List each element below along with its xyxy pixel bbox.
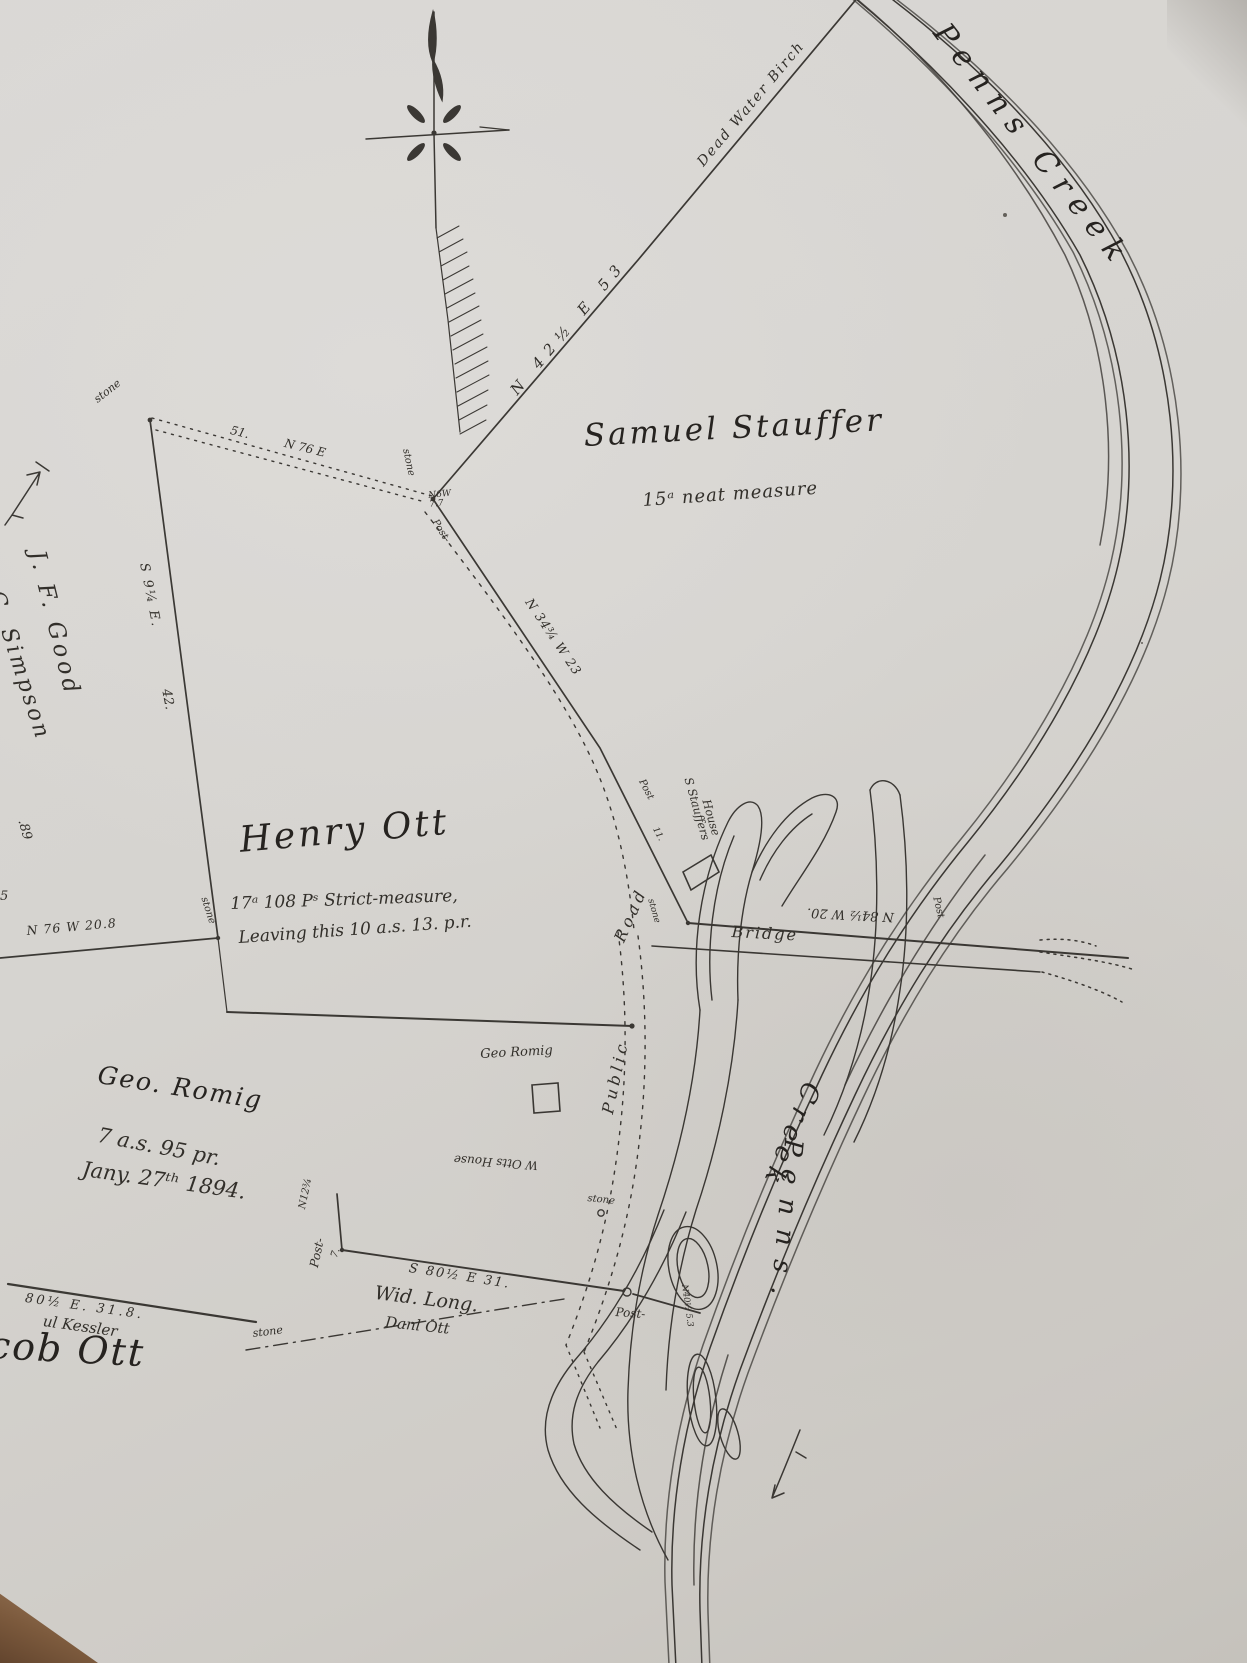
flow-arrow-icon	[772, 1430, 806, 1498]
survey-map-photo: Penns Creek Creek Penns. Dead Water Birc…	[0, 0, 1247, 1663]
label-post-creek: Post-	[615, 1306, 646, 1321]
house-romig	[532, 1083, 560, 1113]
label-dist-42: 42.	[159, 688, 176, 711]
paper-speck	[1003, 213, 1007, 217]
label-frag-5: 5	[0, 890, 8, 904]
compass-rose-icon	[366, 12, 509, 434]
label-jacob-name: cob Ott	[0, 1326, 146, 1374]
map-linework	[0, 0, 1247, 1663]
label-corner-bearing: N6W 7.7	[428, 488, 466, 511]
pen-flourish-arrow	[5, 462, 49, 525]
paper-edge-shadow	[1167, 0, 1247, 130]
parcel-boundaries	[0, 0, 864, 1322]
survey-nodes	[148, 418, 691, 1296]
label-bridge: Bridge	[731, 924, 798, 944]
paper-speck	[1141, 642, 1143, 644]
house-stauffer	[683, 855, 719, 890]
